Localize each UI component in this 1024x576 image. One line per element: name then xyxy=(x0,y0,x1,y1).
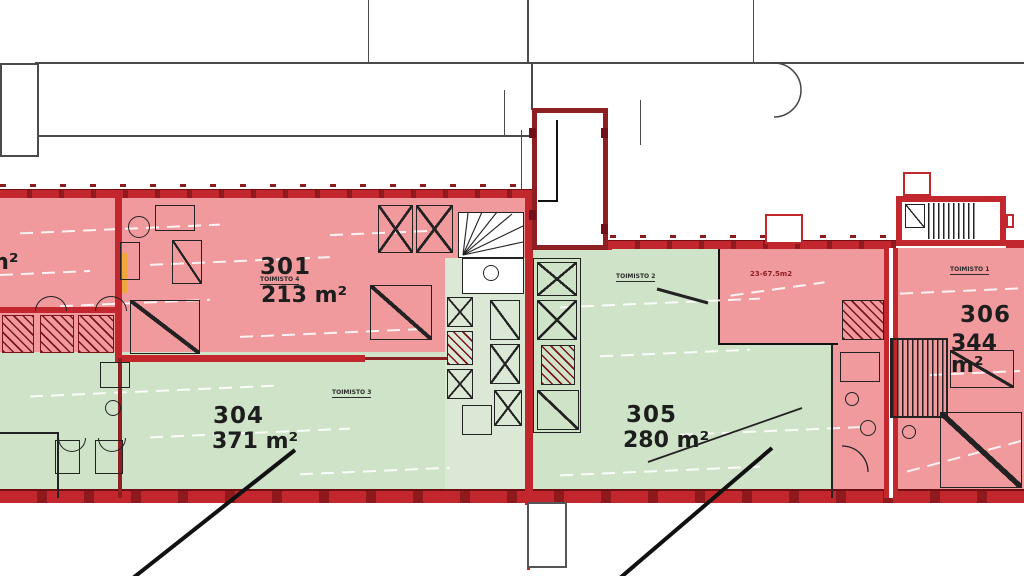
window-tick-row xyxy=(0,184,530,187)
column-symbol xyxy=(902,425,916,439)
stairwell-notch xyxy=(1006,214,1014,228)
wall-stud xyxy=(601,224,608,234)
duct-box xyxy=(842,300,884,340)
room-305-area: 280 m² xyxy=(623,430,709,452)
table xyxy=(128,216,150,238)
stair-landing-symbol xyxy=(905,204,925,228)
exterior-stair-outline xyxy=(527,502,567,568)
window-hatch xyxy=(78,315,114,353)
wc-bowl xyxy=(105,400,121,416)
small-room-fill xyxy=(718,248,838,345)
wc-cubicle xyxy=(490,344,520,384)
sink xyxy=(845,392,859,406)
outline-hline xyxy=(35,62,1024,64)
wc-cubicle xyxy=(490,300,520,340)
furniture-block xyxy=(940,412,1022,488)
exterior-wall-top-right-end xyxy=(1006,240,1024,248)
room-306-type-label: TOIMISTO 1 xyxy=(950,267,989,275)
outline-annex xyxy=(0,63,39,157)
wall-301-bottom xyxy=(115,355,365,362)
duct-box xyxy=(494,390,522,426)
room-305-number: 305 xyxy=(626,404,677,427)
outline-vline xyxy=(504,90,505,137)
room-304-type-label: TOIMISTO 3 xyxy=(332,390,371,398)
wall-stud xyxy=(529,210,536,220)
window-tick-row xyxy=(610,235,896,238)
column-symbol xyxy=(483,265,499,281)
sink xyxy=(860,420,876,436)
wc-cubicle xyxy=(462,405,492,435)
room-left-partial-area: m² xyxy=(0,252,19,274)
partition-line xyxy=(0,432,58,434)
wall-stud xyxy=(529,128,536,138)
stairwell-annex xyxy=(903,172,931,196)
duct-box xyxy=(447,369,473,399)
room-304-area: 371 m² xyxy=(212,431,298,453)
duct-box xyxy=(541,345,575,385)
room-301-area: 213 m² xyxy=(261,285,347,307)
shaft-inner-wall xyxy=(538,120,558,202)
window-hatch xyxy=(2,315,34,353)
exterior-wall-top-right xyxy=(608,240,896,249)
winder-stair-room xyxy=(458,212,524,258)
small-room-area-label: 23-67.5m2 xyxy=(750,271,792,278)
duct-box xyxy=(537,390,579,430)
duct-box xyxy=(537,300,577,340)
outline-vline xyxy=(368,0,369,62)
duct-box xyxy=(537,262,577,296)
cabinet xyxy=(120,242,140,280)
outline-hline xyxy=(37,135,537,137)
wc-fixture xyxy=(100,362,130,388)
shaft-box xyxy=(416,205,453,253)
sink-counter xyxy=(840,352,880,382)
room-306-number: 306 xyxy=(960,304,1011,327)
exterior-wall-bottom xyxy=(0,489,1024,503)
door-swing-arc xyxy=(774,63,801,117)
floor-plan: m² 301 TOIMISTO 4 213 m² 304 371 m² TOIM… xyxy=(0,0,1024,576)
sub-room xyxy=(370,285,432,340)
window-hatch xyxy=(40,315,74,353)
duct-box xyxy=(447,331,473,365)
red-outline-box xyxy=(765,214,803,244)
outline-vline xyxy=(527,0,529,62)
room-306-area: 344 m² xyxy=(951,333,1024,377)
furniture xyxy=(172,240,202,284)
desk-group xyxy=(130,300,200,354)
outline-vline xyxy=(531,62,533,110)
shaft-box xyxy=(378,205,413,253)
duct-box xyxy=(447,297,473,327)
room-305-type-label: TOIMISTO 2 xyxy=(616,274,655,282)
outline-vline xyxy=(753,0,754,62)
wall-stud xyxy=(601,128,608,138)
outline-vline xyxy=(640,100,641,145)
partition-line xyxy=(831,345,833,498)
room-304-number: 304 xyxy=(213,405,264,428)
stair-block xyxy=(890,338,948,418)
stair-treads xyxy=(928,203,978,239)
desk xyxy=(155,205,195,231)
wall-301-bottom-thin xyxy=(365,357,447,360)
partition-line xyxy=(57,432,59,498)
exterior-wall-top-left xyxy=(0,189,532,198)
